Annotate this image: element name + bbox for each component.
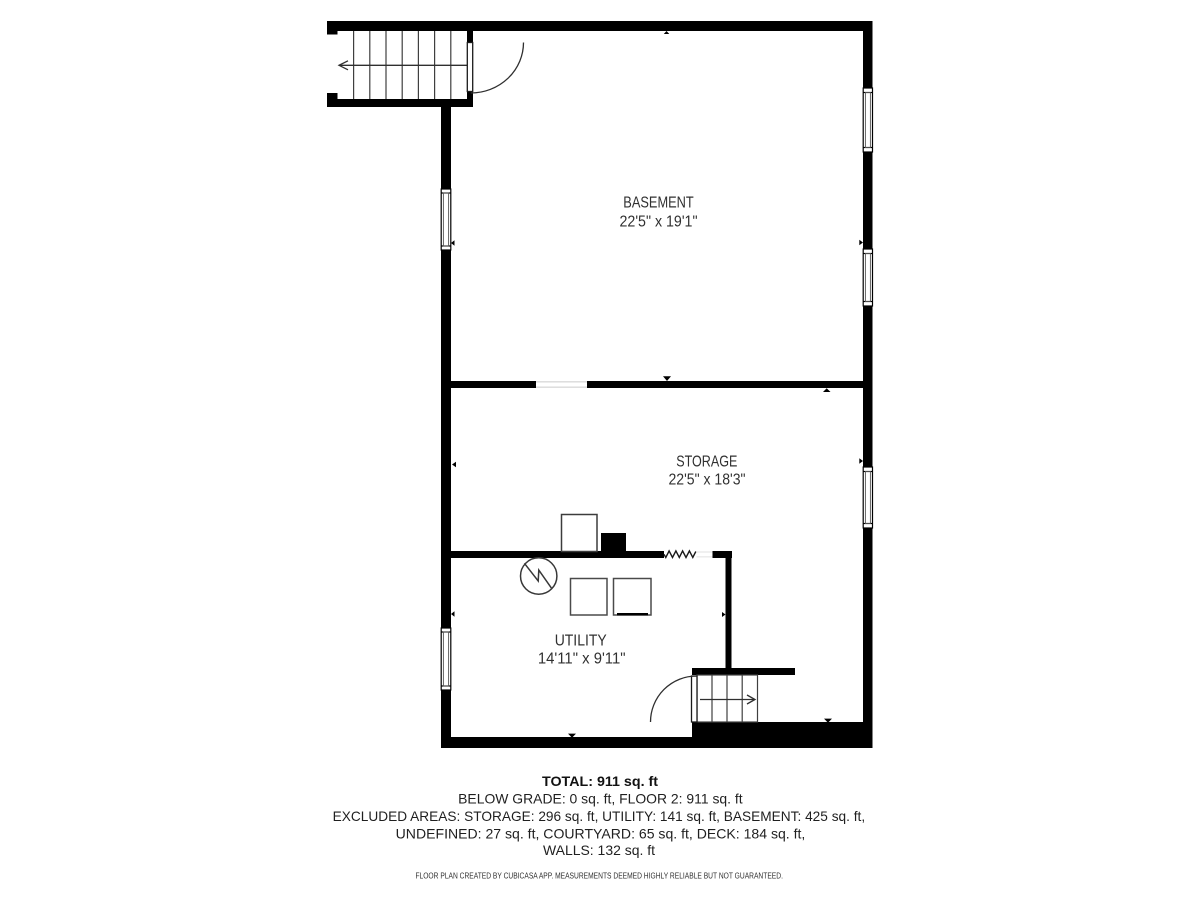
- svg-text:BASEMENT: BASEMENT: [623, 195, 694, 212]
- svg-text:TOTAL: 911 sq. ft: TOTAL: 911 sq. ft: [542, 774, 658, 790]
- svg-text:STORAGE: STORAGE: [676, 454, 737, 471]
- svg-text:BELOW GRADE: 0 sq. ft, FLOOR 2: BELOW GRADE: 0 sq. ft, FLOOR 2: 911 sq. …: [458, 791, 743, 807]
- svg-text:22'5" x 18'3": 22'5" x 18'3": [669, 472, 746, 489]
- svg-text:WALLS: 132 sq. ft: WALLS: 132 sq. ft: [543, 842, 655, 858]
- svg-text:22'5" x 19'1": 22'5" x 19'1": [620, 213, 698, 230]
- svg-text:EXCLUDED AREAS: STORAGE: 296 s: EXCLUDED AREAS: STORAGE: 296 sq. ft, UTI…: [333, 808, 866, 824]
- svg-text:UNDEFINED: 27 sq. ft, COURTYAR: UNDEFINED: 27 sq. ft, COURTYARD: 65 sq. …: [396, 826, 806, 842]
- svg-text:14'11" x 9'11": 14'11" x 9'11": [538, 651, 626, 668]
- svg-text:FLOOR PLAN CREATED BY CUBICASA: FLOOR PLAN CREATED BY CUBICASA APP. MEAS…: [415, 872, 783, 881]
- svg-text:UTILITY: UTILITY: [555, 633, 607, 650]
